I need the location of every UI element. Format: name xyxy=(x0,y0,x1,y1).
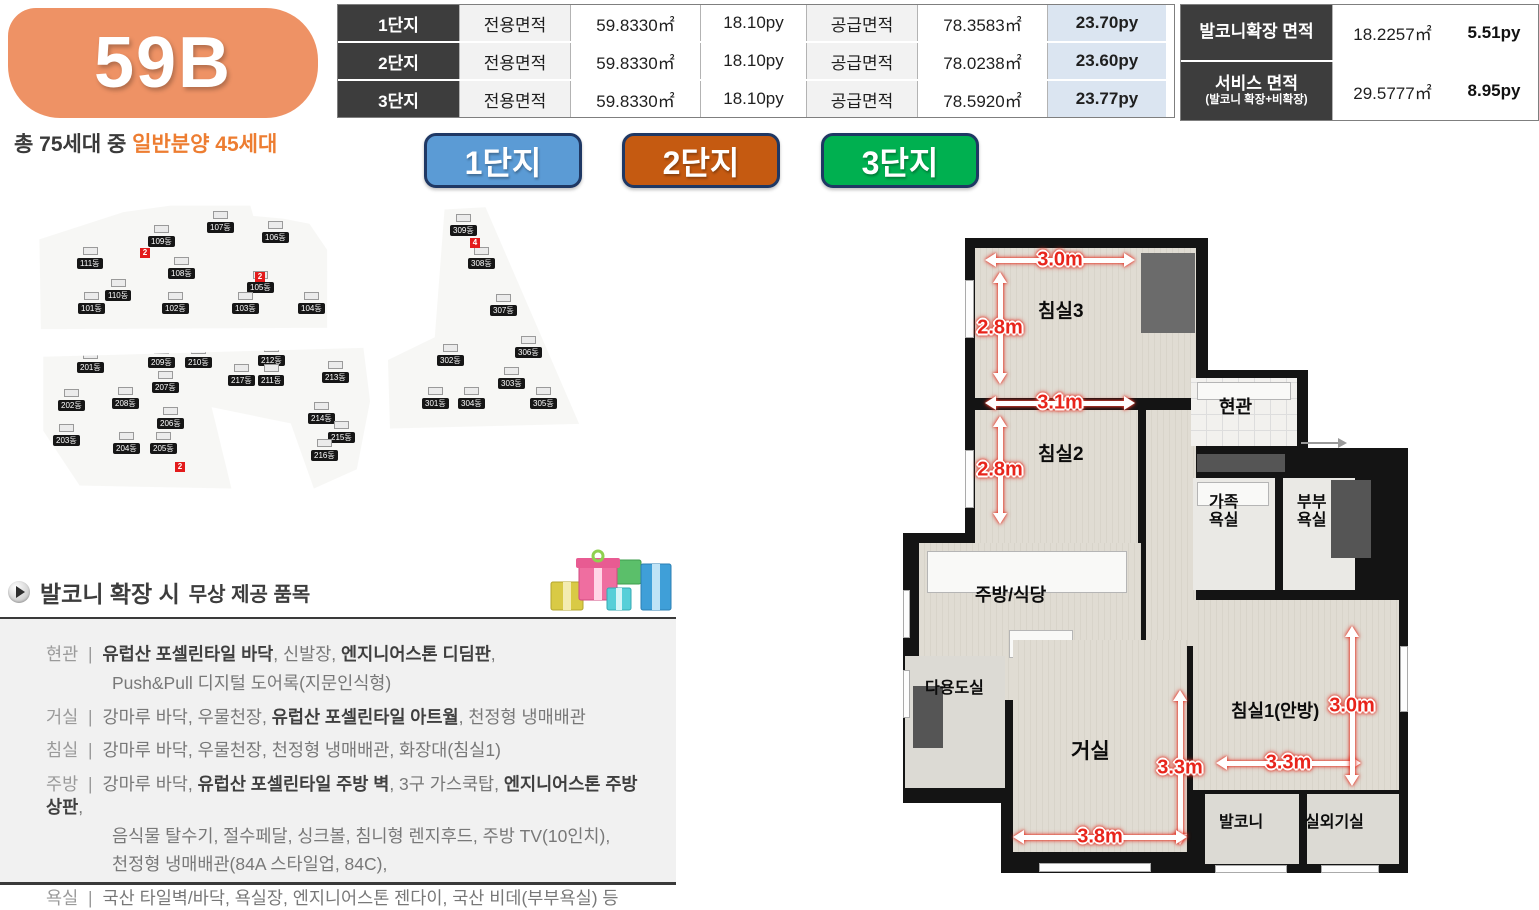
area-cell-supply-py: 23.77py xyxy=(1048,81,1166,117)
building-footprint xyxy=(268,221,283,229)
building-footprint xyxy=(264,344,279,352)
area-table-row: 3단지전용면적59.8330㎡18.10py공급면적78.5920㎡23.77p… xyxy=(338,81,1174,117)
side-cell-m2: 18.2257㎡ xyxy=(1333,5,1452,60)
room-label: 거실 xyxy=(1071,740,1110,763)
building-label: 209동 xyxy=(148,357,175,368)
building-label: 102동 xyxy=(162,303,189,314)
building-footprint xyxy=(118,387,133,395)
side-cell-label: 발코니확장 면적 xyxy=(1181,5,1333,60)
unit-count-marker: 2 xyxy=(255,272,265,282)
furniture-block xyxy=(1197,454,1285,472)
freebies-line: 음식물 탈수기, 절수페달, 싱크볼, 침니형 렌지후드, 주방 TV(10인치… xyxy=(46,825,656,848)
floor-plan: 침실3침실2현관가족 욕실부부 욕실주방/식당다용도실거실침실1(안방)발코니실… xyxy=(903,238,1443,878)
freebies-text: Push&Pull 디지털 도어록(지문인식형) xyxy=(112,673,391,693)
area-cell-exclusive-py: 18.10py xyxy=(701,43,807,79)
building-footprint xyxy=(521,336,536,344)
exterior-cutout xyxy=(903,803,1001,878)
unit-count-marker: 2 xyxy=(175,462,185,472)
dimension-label: 3.8m xyxy=(1077,826,1123,849)
building-label: 215동 xyxy=(328,432,355,443)
site-map-complex-1: 111동109동107동106동108동110동105동101동102동103동… xyxy=(35,203,330,333)
building-label: 307동 xyxy=(490,305,517,316)
building-footprint xyxy=(264,364,279,372)
area-table-row: 1단지전용면적59.8330㎡18.10py공급면적78.3583㎡23.70p… xyxy=(338,5,1174,43)
furniture-block xyxy=(1331,480,1371,558)
freebies-text: , xyxy=(78,797,83,817)
dimension-label: 3.3m xyxy=(1157,756,1203,779)
window xyxy=(903,590,910,638)
area-table-row: 2단지전용면적59.8330㎡18.10py공급면적78.0238㎡23.60p… xyxy=(338,43,1174,81)
building-footprint xyxy=(328,361,343,369)
area-cell-exclusive-label: 전용면적 xyxy=(460,43,571,79)
building-footprint xyxy=(83,247,98,255)
room-label: 침실2 xyxy=(1038,445,1084,466)
room-label: 주방/식당 xyxy=(975,586,1046,606)
building-label: 111동 xyxy=(77,258,103,269)
building-label: 208동 xyxy=(112,398,139,409)
freebies-text: 강마루 바닥, xyxy=(103,774,198,794)
complex-area-table: 1단지전용면적59.8330㎡18.10py공급면적78.3583㎡23.70p… xyxy=(337,4,1175,118)
window xyxy=(1400,646,1408,712)
freebies-heading: 발코니 확장 시 무상 제공 품목 xyxy=(8,575,310,609)
freebies-text: , 천정형 냉매배관 xyxy=(459,707,586,727)
dimension-label: 2.8m xyxy=(977,459,1023,482)
building-footprint xyxy=(64,389,79,397)
freebies-room-label: 현관 xyxy=(46,643,86,666)
area-cell-supply-m2: 78.3583㎡ xyxy=(918,5,1048,41)
freebies-title-sub: 무상 제공 품목 xyxy=(189,578,311,607)
freebies-title-main: 발코니 확장 시 xyxy=(40,575,180,609)
window xyxy=(903,670,910,718)
building-footprint xyxy=(443,344,458,352)
freebies-line: 천정형 냉매배관(84A 스타일업, 84C), xyxy=(46,853,656,876)
building-footprint xyxy=(163,407,178,415)
unit-count-marker: 4 xyxy=(470,238,480,248)
side-label-text: 서비스 면적 xyxy=(1215,75,1298,94)
building-label: 206동 xyxy=(157,418,184,429)
building-footprint xyxy=(234,364,249,372)
dimension-arrow: 3.0m xyxy=(1345,626,1359,786)
dimension-arrow: 3.3m xyxy=(1173,690,1187,845)
building-footprint xyxy=(83,351,98,359)
room-label: 침실3 xyxy=(1038,302,1084,323)
freebies-list-box: 현관|유럽산 포셀린타일 바닥, 신발장, 엔지니어스톤 디딤판,Push&Pu… xyxy=(0,617,676,885)
building-label: 305동 xyxy=(530,398,557,409)
section-bullet-play-icon xyxy=(8,581,30,603)
building-footprint xyxy=(59,424,74,432)
entrance-direction-arrow-icon xyxy=(1301,442,1339,444)
freebies-separator: | xyxy=(88,707,93,727)
building-label: 108동 xyxy=(168,268,195,279)
building-footprint xyxy=(504,367,519,375)
area-cell-supply-label: 공급면적 xyxy=(807,5,918,41)
building-footprint xyxy=(168,292,183,300)
freebies-text: 강마루 바닥, 우물천장, 천정형 냉매배관, 화장대(침실1) xyxy=(103,740,501,760)
side-label-text: 발코니확장 면적 xyxy=(1199,23,1313,42)
building-label: 103동 xyxy=(232,303,259,314)
room-label: 현관 xyxy=(1219,398,1252,418)
room-label: 다용도실 xyxy=(925,680,984,698)
unit-count-marker: 2 xyxy=(140,248,150,258)
building-label: 217동 xyxy=(228,375,255,386)
building-footprint xyxy=(334,421,349,429)
room-label: 가족 욕실 xyxy=(1209,494,1238,529)
freebies-text: 유럽산 포셀린타일 바닥 xyxy=(103,644,274,664)
complex-button-1[interactable]: 1단지 xyxy=(424,133,582,188)
building-label: 303동 xyxy=(498,378,525,389)
area-cell-exclusive-py: 18.10py xyxy=(701,5,807,41)
building-label: 301동 xyxy=(422,398,449,409)
area-cell-exclusive-py: 18.10py xyxy=(701,81,807,117)
building-label: 308동 xyxy=(468,258,495,269)
freebies-line: 현관|유럽산 포셀린타일 바닥, 신발장, 엔지니어스톤 디딤판, xyxy=(46,643,656,666)
building-label: 101동 xyxy=(78,303,105,314)
dimension-arrow: 3.1m xyxy=(985,396,1135,410)
building-label: 109동 xyxy=(148,236,175,247)
building-label: 213동 xyxy=(322,372,349,383)
freebies-text: 강마루 바닥, 우물천장, xyxy=(103,707,272,727)
freebies-item: 거실|강마루 바닥, 우물천장, 유럽산 포셀린타일 아트월, 천정형 냉매배관 xyxy=(46,706,656,729)
freebies-separator: | xyxy=(88,888,93,908)
building-footprint xyxy=(304,292,319,300)
freebies-text: 엔지니어스톤 디딤판 xyxy=(341,644,491,664)
building-footprint xyxy=(156,432,171,440)
side-table-row: 서비스 면적(발코니 확장+비확장)29.5777㎡8.95py xyxy=(1181,62,1538,120)
area-cell-complex: 2단지 xyxy=(338,43,460,79)
dimension-label: 3.0m xyxy=(1037,249,1083,272)
building-footprint xyxy=(536,387,551,395)
window xyxy=(1215,865,1287,873)
freebies-line: 거실|강마루 바닥, 우물천장, 유럽산 포셀린타일 아트월, 천정형 냉매배관 xyxy=(46,706,656,729)
building-label: 106동 xyxy=(262,232,289,243)
building-footprint xyxy=(456,214,471,222)
complex-button-2[interactable]: 2단지 xyxy=(622,133,780,188)
furniture-block xyxy=(1141,253,1195,333)
building-label: 201동 xyxy=(77,362,104,373)
freebies-item: 침실|강마루 바닥, 우물천장, 천정형 냉매배관, 화장대(침실1) xyxy=(46,739,656,762)
building-footprint xyxy=(174,257,189,265)
room-label: 부부 욕실 xyxy=(1297,494,1326,529)
building-label: 110동 xyxy=(105,290,131,301)
building-footprint xyxy=(474,247,489,255)
window xyxy=(1039,863,1151,872)
room-label: 발코니 xyxy=(1219,814,1263,832)
area-cell-exclusive-m2: 59.8330㎡ xyxy=(571,43,701,79)
window xyxy=(965,280,974,338)
building-label: 306동 xyxy=(515,347,542,358)
building-label: 204동 xyxy=(113,443,140,454)
area-cell-complex: 1단지 xyxy=(338,5,460,41)
side-table-row: 발코니확장 면적18.2257㎡5.51py xyxy=(1181,5,1538,62)
freebies-text: , xyxy=(491,644,496,664)
freebies-line: 욕실|국산 타일벽/바닥, 욕실장, 엔지니어스톤 젠다이, 국산 비데(부부욕… xyxy=(46,887,656,910)
area-cell-exclusive-m2: 59.8330㎡ xyxy=(571,81,701,117)
building-label: 211동 xyxy=(258,375,284,386)
building-footprint xyxy=(213,211,228,219)
building-footprint xyxy=(238,292,253,300)
balcony-service-area-table: 발코니확장 면적18.2257㎡5.51py서비스 면적(발코니 확장+비확장)… xyxy=(1180,4,1539,121)
freebies-text: 국산 타일벽/바닥, 욕실장, 엔지니어스톤 젠다이, 국산 비데(부부욕실) … xyxy=(103,888,619,908)
complex-button-3[interactable]: 3단지 xyxy=(821,133,979,188)
building-label: 202동 xyxy=(58,400,85,411)
area-cell-complex: 3단지 xyxy=(338,81,460,117)
dimension-label: 2.8m xyxy=(977,317,1023,340)
area-cell-exclusive-m2: 59.8330㎡ xyxy=(571,5,701,41)
building-footprint xyxy=(428,387,443,395)
freebies-room-label: 욕실 xyxy=(46,887,86,910)
freebies-text: 음식물 탈수기, 절수페달, 싱크볼, 침니형 렌지후드, 주방 TV(10인치… xyxy=(112,826,610,846)
gift-boxes-icon xyxy=(545,548,677,618)
unit-type-badge: 59B xyxy=(8,8,318,118)
dimension-arrow: 3.3m xyxy=(1216,756,1361,770)
freebies-text: , 3구 가스쿡탑, xyxy=(389,774,504,794)
room-label: 침실1(안방) xyxy=(1231,702,1319,722)
side-cell-m2: 29.5777㎡ xyxy=(1333,62,1452,120)
dimension-label: 3.3m xyxy=(1266,752,1312,775)
building-footprint xyxy=(158,371,173,379)
room-floor xyxy=(1146,556,1196,646)
room-label: 실외기실 xyxy=(1305,814,1364,832)
building-label: 214동 xyxy=(308,413,335,424)
freebies-line: 주방|강마루 바닥, 유럽산 포셀린타일 주방 벽, 3구 가스쿡탑, 엔지니어… xyxy=(46,773,656,819)
window xyxy=(1321,865,1379,873)
side-label-subtext: (발코니 확장+비확장) xyxy=(1205,94,1307,107)
site-map-complex-3: 309동308동307동306동302동303동301동304동305동4 xyxy=(388,205,583,433)
freebies-text: 천정형 냉매배관(84A 스타일업, 84C), xyxy=(112,854,387,874)
freebies-room-label: 침실 xyxy=(46,739,86,762)
area-cell-supply-m2: 78.5920㎡ xyxy=(918,81,1048,117)
building-footprint xyxy=(154,346,169,354)
dimension-label: 3.0m xyxy=(1329,695,1375,718)
freebies-line: Push&Pull 디지털 도어록(지문인식형) xyxy=(46,672,656,695)
household-total: 총 75세대 중 xyxy=(14,133,132,156)
household-general-sale: 일반분양 45세대 xyxy=(132,133,277,156)
building-label: 207동 xyxy=(152,382,179,393)
building-footprint xyxy=(111,279,126,287)
freebies-text: 유럽산 포셀린타일 아트월 xyxy=(272,707,459,727)
room-floor xyxy=(1146,410,1196,556)
area-cell-supply-py: 23.70py xyxy=(1048,5,1166,41)
site-map-complex-2: 201동209동210동212동217동211동213동202동208동207동… xyxy=(40,342,370,490)
freebies-item: 주방|강마루 바닥, 유럽산 포셀린타일 주방 벽, 3구 가스쿡탑, 엔지니어… xyxy=(46,773,656,876)
building-label: 302동 xyxy=(437,355,464,366)
freebies-text: 유럽산 포셀린타일 주방 벽 xyxy=(198,774,390,794)
side-cell-py: 8.95py xyxy=(1452,62,1536,120)
freebies-separator: | xyxy=(88,774,93,794)
freebies-separator: | xyxy=(88,740,93,760)
building-label: 216동 xyxy=(311,450,338,461)
area-cell-supply-py: 23.60py xyxy=(1048,43,1166,79)
side-cell-label: 서비스 면적(발코니 확장+비확장) xyxy=(1181,62,1333,120)
household-info: 총 75세대 중 일반분양 45세대 xyxy=(14,128,277,158)
building-label: 205동 xyxy=(150,443,177,454)
dimension-arrow: 2.8m xyxy=(993,416,1007,524)
building-footprint xyxy=(464,387,479,395)
building-footprint xyxy=(119,432,134,440)
building-label: 210동 xyxy=(185,357,212,368)
freebies-room-label: 거실 xyxy=(46,706,86,729)
side-cell-py: 5.51py xyxy=(1452,5,1536,60)
area-cell-exclusive-label: 전용면적 xyxy=(460,81,571,117)
freebies-separator: | xyxy=(88,644,93,664)
building-footprint xyxy=(154,225,169,233)
building-label: 304동 xyxy=(458,398,485,409)
freebies-item: 현관|유럽산 포셀린타일 바닥, 신발장, 엔지니어스톤 디딤판,Push&Pu… xyxy=(46,643,656,695)
dimension-arrow: 2.8m xyxy=(993,272,1007,384)
building-label: 107동 xyxy=(207,222,234,233)
building-label: 309동 xyxy=(450,225,477,236)
building-footprint xyxy=(191,346,206,354)
building-footprint xyxy=(496,294,511,302)
area-cell-supply-label: 공급면적 xyxy=(807,43,918,79)
dimension-arrow: 3.8m xyxy=(1013,830,1187,844)
dimension-arrow: 3.0m xyxy=(985,253,1135,267)
area-cell-exclusive-label: 전용면적 xyxy=(460,5,571,41)
freebies-text: , 신발장, xyxy=(273,644,341,664)
area-cell-supply-m2: 78.0238㎡ xyxy=(918,43,1048,79)
building-footprint xyxy=(314,402,329,410)
freebies-room-label: 주방 xyxy=(46,773,86,796)
building-footprint xyxy=(317,439,332,447)
freebies-item: 욕실|국산 타일벽/바닥, 욕실장, 엔지니어스톤 젠다이, 국산 비데(부부욕… xyxy=(46,887,656,910)
building-footprint xyxy=(84,292,99,300)
freebies-line: 침실|강마루 바닥, 우물천장, 천정형 냉매배관, 화장대(침실1) xyxy=(46,739,656,762)
building-label: 104동 xyxy=(298,303,325,314)
area-cell-supply-label: 공급면적 xyxy=(807,81,918,117)
building-label: 203동 xyxy=(53,435,80,446)
dimension-label: 3.1m xyxy=(1037,392,1083,415)
window xyxy=(965,450,974,508)
